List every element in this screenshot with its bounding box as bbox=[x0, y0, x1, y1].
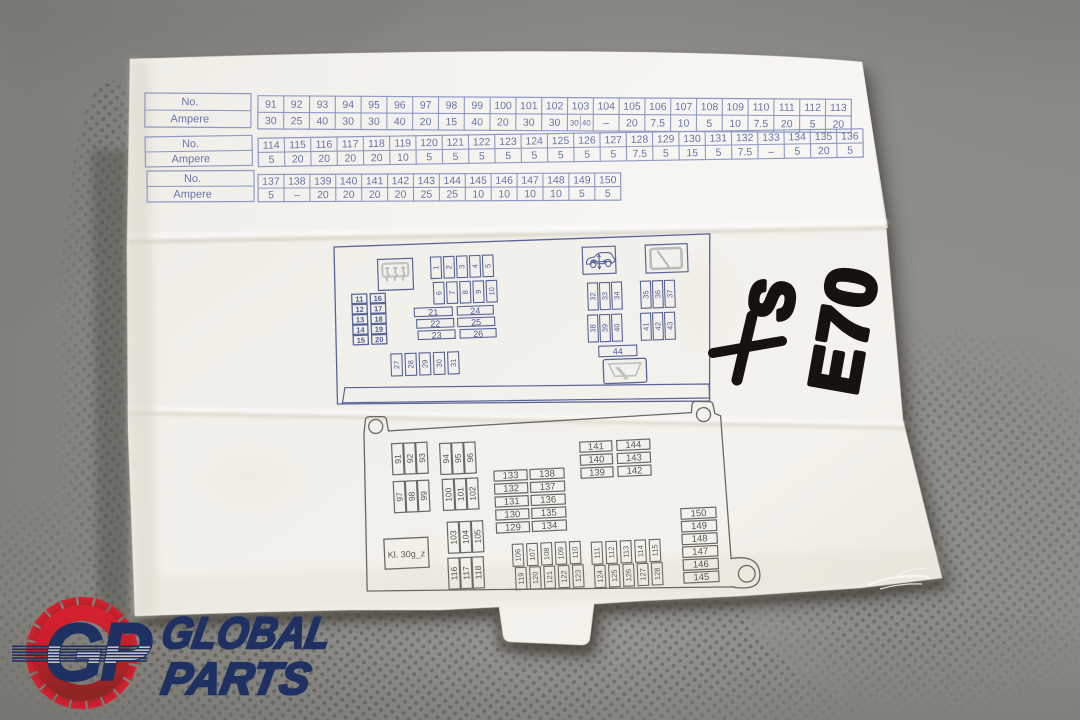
svg-text:131: 131 bbox=[504, 496, 520, 508]
svg-text:148: 148 bbox=[547, 174, 565, 186]
svg-text:112: 112 bbox=[607, 546, 617, 558]
svg-text:28: 28 bbox=[406, 360, 415, 369]
svg-text:142: 142 bbox=[626, 465, 642, 477]
svg-text:20: 20 bbox=[818, 145, 830, 157]
svg-text:PARTS: PARTS bbox=[158, 653, 315, 704]
svg-text:Ampere: Ampere bbox=[173, 189, 212, 201]
svg-text:17: 17 bbox=[374, 304, 383, 313]
svg-text:103: 103 bbox=[448, 530, 459, 545]
svg-text:114: 114 bbox=[636, 545, 646, 557]
svg-text:5: 5 bbox=[479, 150, 485, 162]
svg-text:136: 136 bbox=[540, 494, 556, 506]
svg-text:5: 5 bbox=[268, 189, 274, 201]
svg-text:98: 98 bbox=[406, 491, 416, 501]
svg-text:GLOBAL: GLOBAL bbox=[158, 609, 335, 658]
svg-text:112: 112 bbox=[804, 102, 821, 114]
svg-text:–: – bbox=[294, 189, 300, 201]
svg-text:5: 5 bbox=[579, 188, 585, 200]
svg-text:5: 5 bbox=[426, 151, 432, 163]
svg-text:133: 133 bbox=[502, 470, 518, 482]
svg-text:103: 103 bbox=[572, 100, 590, 112]
svg-text:30: 30 bbox=[549, 117, 561, 129]
svg-text:100: 100 bbox=[494, 100, 512, 112]
svg-text:94: 94 bbox=[342, 99, 354, 111]
svg-text:128: 128 bbox=[631, 134, 649, 146]
svg-text:116: 116 bbox=[449, 566, 460, 580]
svg-text:119: 119 bbox=[516, 572, 526, 584]
svg-text:150: 150 bbox=[690, 508, 706, 520]
svg-text:40: 40 bbox=[612, 323, 621, 332]
svg-text:15: 15 bbox=[686, 147, 698, 159]
svg-text:149: 149 bbox=[573, 174, 591, 186]
svg-text:10: 10 bbox=[487, 287, 496, 296]
svg-text:147: 147 bbox=[692, 546, 708, 558]
svg-text:104: 104 bbox=[597, 101, 615, 113]
svg-text:11: 11 bbox=[355, 295, 363, 304]
svg-text:141: 141 bbox=[588, 441, 604, 453]
svg-text:101: 101 bbox=[520, 100, 538, 112]
svg-text:131: 131 bbox=[709, 132, 727, 144]
svg-text:30: 30 bbox=[342, 116, 354, 128]
svg-text:122: 122 bbox=[473, 136, 491, 148]
svg-text:30: 30 bbox=[523, 117, 535, 129]
svg-text:Ampere: Ampere bbox=[171, 113, 210, 125]
svg-text:141: 141 bbox=[366, 175, 384, 187]
svg-text:10: 10 bbox=[524, 188, 536, 200]
svg-text:40: 40 bbox=[316, 115, 328, 127]
svg-text:111: 111 bbox=[779, 102, 795, 114]
svg-text:7.5: 7.5 bbox=[754, 118, 769, 130]
svg-text:5: 5 bbox=[531, 150, 537, 162]
svg-text:134: 134 bbox=[541, 520, 557, 532]
svg-text:No.: No. bbox=[184, 173, 201, 185]
svg-text:102: 102 bbox=[546, 100, 564, 112]
svg-text:8: 8 bbox=[461, 290, 470, 294]
svg-text:20: 20 bbox=[395, 189, 407, 201]
svg-text:113: 113 bbox=[830, 102, 847, 114]
svg-text:99: 99 bbox=[471, 100, 483, 112]
svg-text:7.5: 7.5 bbox=[738, 146, 753, 158]
svg-text:23: 23 bbox=[431, 330, 441, 340]
svg-text:7: 7 bbox=[448, 290, 457, 294]
svg-text:142: 142 bbox=[392, 175, 410, 187]
svg-text:29: 29 bbox=[420, 360, 429, 369]
svg-text:101: 101 bbox=[455, 487, 466, 502]
svg-text:94: 94 bbox=[441, 454, 451, 464]
svg-text:24: 24 bbox=[470, 306, 480, 316]
svg-text:5: 5 bbox=[483, 264, 492, 268]
svg-text:44: 44 bbox=[613, 346, 623, 356]
svg-text:5: 5 bbox=[584, 149, 590, 161]
svg-text:18: 18 bbox=[374, 314, 383, 323]
svg-text:3: 3 bbox=[457, 265, 466, 269]
svg-text:20: 20 bbox=[375, 335, 384, 344]
svg-text:5: 5 bbox=[453, 151, 459, 163]
svg-text:No.: No. bbox=[182, 138, 199, 150]
svg-text:126: 126 bbox=[624, 569, 634, 582]
svg-text:–: – bbox=[603, 117, 609, 129]
svg-text:32: 32 bbox=[588, 292, 597, 301]
svg-text:Ampere: Ampere bbox=[171, 153, 210, 166]
svg-text:20: 20 bbox=[626, 117, 638, 129]
svg-text:139: 139 bbox=[589, 467, 605, 479]
svg-text:137: 137 bbox=[262, 176, 280, 188]
svg-text:134: 134 bbox=[788, 131, 806, 143]
svg-text:5: 5 bbox=[847, 145, 853, 157]
svg-text:120: 120 bbox=[420, 137, 438, 149]
svg-text:104: 104 bbox=[460, 529, 471, 544]
svg-text:20: 20 bbox=[318, 153, 330, 165]
svg-text:107: 107 bbox=[675, 101, 693, 113]
svg-text:97: 97 bbox=[394, 492, 404, 502]
svg-text:143: 143 bbox=[418, 175, 436, 187]
svg-text:15: 15 bbox=[445, 116, 457, 128]
svg-text:100: 100 bbox=[443, 487, 454, 502]
svg-text:107: 107 bbox=[528, 548, 538, 561]
svg-text:20: 20 bbox=[317, 189, 329, 201]
svg-text:5: 5 bbox=[706, 118, 712, 130]
svg-text:5: 5 bbox=[610, 148, 616, 160]
svg-text:38: 38 bbox=[588, 324, 597, 333]
svg-text:22: 22 bbox=[430, 319, 440, 329]
svg-text:41: 41 bbox=[641, 322, 650, 331]
svg-text:1: 1 bbox=[431, 265, 440, 269]
svg-text:121: 121 bbox=[446, 137, 464, 149]
svg-text:42: 42 bbox=[653, 322, 662, 331]
svg-text:30: 30 bbox=[435, 359, 444, 368]
svg-text:7.5: 7.5 bbox=[632, 148, 647, 160]
svg-text:109: 109 bbox=[556, 547, 566, 560]
svg-text:91: 91 bbox=[265, 99, 277, 111]
svg-text:147: 147 bbox=[521, 175, 539, 187]
svg-text:12: 12 bbox=[355, 305, 364, 314]
svg-text:110: 110 bbox=[570, 546, 580, 558]
svg-text:117: 117 bbox=[342, 138, 359, 150]
svg-text:2: 2 bbox=[444, 265, 453, 269]
svg-text:121: 121 bbox=[545, 571, 555, 584]
svg-text:118: 118 bbox=[473, 565, 484, 579]
svg-text:106: 106 bbox=[649, 101, 667, 113]
svg-text:111: 111 bbox=[592, 547, 602, 559]
svg-text:115: 115 bbox=[289, 139, 306, 151]
svg-text:148: 148 bbox=[691, 533, 707, 545]
svg-text:140: 140 bbox=[588, 454, 604, 466]
svg-text:98: 98 bbox=[446, 100, 458, 112]
svg-text:132: 132 bbox=[503, 483, 519, 495]
svg-text:135: 135 bbox=[815, 131, 833, 143]
svg-text:146: 146 bbox=[693, 559, 709, 571]
svg-text:5: 5 bbox=[663, 148, 669, 160]
svg-text:35: 35 bbox=[641, 290, 650, 299]
svg-text:113: 113 bbox=[621, 546, 631, 558]
svg-text:99: 99 bbox=[418, 491, 428, 501]
svg-text:150: 150 bbox=[599, 174, 617, 186]
svg-text:39: 39 bbox=[600, 324, 609, 333]
svg-text:10: 10 bbox=[397, 152, 409, 164]
svg-text:34: 34 bbox=[612, 291, 621, 300]
svg-text:127: 127 bbox=[604, 134, 622, 146]
svg-text:9: 9 bbox=[474, 290, 483, 294]
svg-text:25: 25 bbox=[471, 317, 481, 327]
svg-text:10: 10 bbox=[678, 118, 690, 130]
svg-text:105: 105 bbox=[623, 101, 641, 113]
svg-text:27: 27 bbox=[392, 361, 401, 370]
svg-text:No.: No. bbox=[181, 96, 198, 108]
svg-text:5: 5 bbox=[505, 150, 511, 162]
svg-text:138: 138 bbox=[288, 176, 306, 188]
svg-text:122: 122 bbox=[559, 570, 569, 583]
svg-text:20: 20 bbox=[343, 189, 355, 201]
svg-text:145: 145 bbox=[469, 175, 487, 187]
svg-text:25: 25 bbox=[421, 189, 433, 201]
svg-text:136: 136 bbox=[841, 130, 859, 142]
svg-text:114: 114 bbox=[263, 139, 280, 151]
svg-text:16: 16 bbox=[373, 294, 382, 303]
svg-text:20: 20 bbox=[420, 116, 432, 128]
svg-text:5: 5 bbox=[605, 188, 611, 200]
svg-text:130: 130 bbox=[504, 509, 520, 521]
svg-text:137: 137 bbox=[539, 481, 555, 493]
svg-text:125: 125 bbox=[552, 135, 570, 147]
svg-text:133: 133 bbox=[762, 132, 780, 144]
svg-text:20: 20 bbox=[292, 153, 304, 165]
svg-text:135: 135 bbox=[541, 507, 557, 519]
svg-text:117: 117 bbox=[461, 566, 472, 580]
svg-text:20: 20 bbox=[497, 117, 509, 129]
svg-text:145: 145 bbox=[693, 572, 709, 584]
svg-text:5: 5 bbox=[558, 149, 564, 161]
svg-text:108: 108 bbox=[701, 101, 719, 113]
svg-text:10: 10 bbox=[472, 188, 484, 200]
svg-text:143: 143 bbox=[626, 452, 642, 464]
svg-text:15: 15 bbox=[356, 336, 365, 345]
svg-text:10: 10 bbox=[729, 118, 741, 130]
svg-text:144: 144 bbox=[625, 439, 641, 451]
svg-text:20: 20 bbox=[344, 152, 356, 164]
svg-text:91: 91 bbox=[393, 454, 403, 464]
svg-text:13: 13 bbox=[356, 315, 365, 324]
svg-text:97: 97 bbox=[420, 99, 432, 111]
svg-text:40: 40 bbox=[582, 119, 592, 128]
svg-text:40: 40 bbox=[394, 116, 406, 128]
svg-text:124: 124 bbox=[525, 135, 543, 147]
svg-text:126: 126 bbox=[578, 135, 596, 147]
svg-text:139: 139 bbox=[314, 175, 332, 187]
svg-text:25: 25 bbox=[291, 115, 303, 127]
svg-text:20: 20 bbox=[371, 152, 383, 164]
svg-text:140: 140 bbox=[340, 175, 358, 187]
svg-text:43: 43 bbox=[665, 321, 674, 330]
svg-text:7.5: 7.5 bbox=[650, 117, 665, 129]
svg-text:–: – bbox=[768, 146, 774, 158]
svg-text:119: 119 bbox=[394, 137, 411, 149]
svg-text:4: 4 bbox=[470, 264, 479, 268]
svg-text:21: 21 bbox=[428, 307, 438, 317]
svg-text:109: 109 bbox=[726, 101, 744, 113]
svg-text:105: 105 bbox=[472, 529, 483, 544]
svg-text:106: 106 bbox=[513, 549, 523, 562]
svg-text:92: 92 bbox=[291, 99, 303, 111]
svg-text:10: 10 bbox=[550, 188, 562, 200]
svg-text:124: 124 bbox=[595, 570, 605, 583]
svg-text:33: 33 bbox=[600, 292, 609, 301]
svg-text:116: 116 bbox=[315, 139, 332, 151]
svg-text:130: 130 bbox=[683, 133, 701, 145]
svg-text:120: 120 bbox=[531, 571, 541, 584]
svg-text:95: 95 bbox=[453, 453, 463, 463]
svg-text:93: 93 bbox=[417, 453, 427, 463]
svg-text:128: 128 bbox=[653, 567, 663, 580]
svg-text:123: 123 bbox=[573, 569, 583, 582]
svg-text:14: 14 bbox=[356, 325, 365, 334]
svg-text:110: 110 bbox=[753, 102, 770, 114]
svg-text:36: 36 bbox=[653, 290, 662, 299]
svg-text:132: 132 bbox=[736, 132, 754, 144]
svg-text:20: 20 bbox=[781, 118, 793, 130]
svg-text:118: 118 bbox=[368, 138, 385, 150]
svg-text:96: 96 bbox=[465, 453, 475, 463]
svg-text:149: 149 bbox=[691, 521, 707, 533]
svg-text:102: 102 bbox=[467, 486, 478, 501]
svg-text:127: 127 bbox=[638, 568, 648, 581]
svg-text:146: 146 bbox=[495, 175, 513, 187]
svg-text:10: 10 bbox=[498, 188, 510, 200]
svg-text:26: 26 bbox=[473, 329, 483, 339]
svg-text:37: 37 bbox=[665, 289, 674, 298]
svg-text:20: 20 bbox=[369, 189, 381, 201]
svg-text:123: 123 bbox=[499, 136, 517, 148]
svg-text:95: 95 bbox=[368, 99, 380, 111]
svg-text:6: 6 bbox=[434, 291, 443, 295]
svg-text:5: 5 bbox=[268, 154, 274, 166]
svg-text:129: 129 bbox=[657, 133, 675, 145]
svg-text:31: 31 bbox=[449, 359, 458, 368]
svg-text:125: 125 bbox=[610, 569, 620, 582]
svg-text:30: 30 bbox=[368, 116, 380, 128]
svg-text:5: 5 bbox=[794, 146, 800, 158]
svg-text:92: 92 bbox=[405, 453, 415, 463]
svg-text:30: 30 bbox=[265, 115, 277, 127]
svg-text:30: 30 bbox=[570, 118, 580, 127]
svg-text:93: 93 bbox=[317, 99, 329, 111]
svg-text:25: 25 bbox=[446, 189, 458, 201]
svg-text:5: 5 bbox=[810, 118, 816, 130]
svg-text:19: 19 bbox=[375, 325, 384, 334]
svg-text:108: 108 bbox=[542, 547, 552, 560]
svg-text:138: 138 bbox=[539, 468, 555, 480]
svg-text:144: 144 bbox=[443, 175, 461, 187]
svg-text:40: 40 bbox=[471, 116, 483, 128]
svg-text:115: 115 bbox=[650, 544, 660, 556]
svg-text:5: 5 bbox=[716, 147, 722, 159]
svg-text:96: 96 bbox=[394, 99, 406, 111]
svg-text:129: 129 bbox=[505, 522, 521, 534]
